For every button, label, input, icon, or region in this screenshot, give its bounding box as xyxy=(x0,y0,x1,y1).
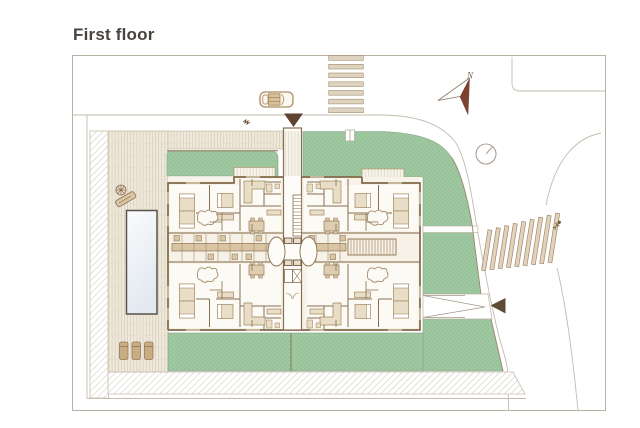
svg-text:N: N xyxy=(466,71,474,81)
